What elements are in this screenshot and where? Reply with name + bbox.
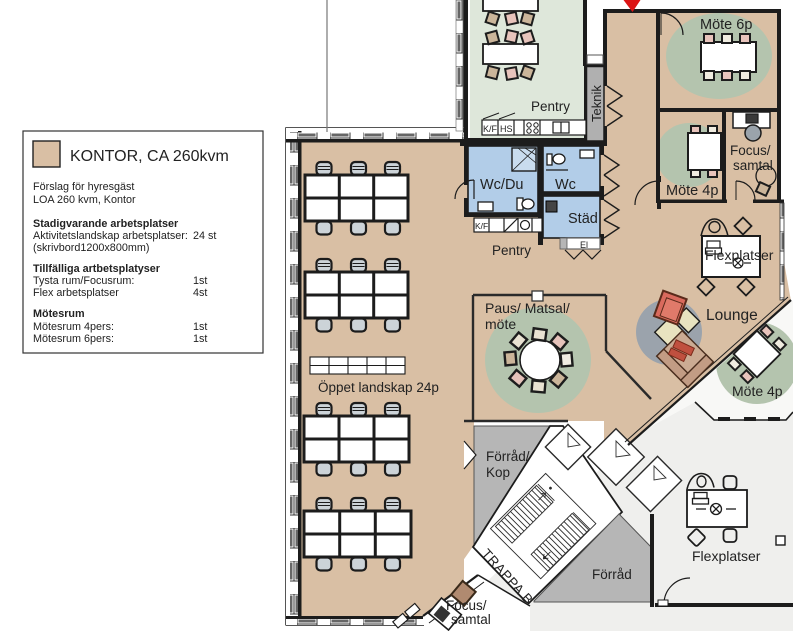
svg-text:möte: möte: [485, 316, 516, 332]
svg-text:El: El: [580, 240, 588, 250]
svg-text:Möte 6p: Möte 6p: [700, 17, 752, 33]
svg-text:Wc: Wc: [555, 177, 576, 193]
svg-text:24 st: 24 st: [193, 230, 216, 242]
svg-text:Mötesrum 6pers:: Mötesrum 6pers:: [33, 333, 114, 345]
svg-text:1st: 1st: [193, 321, 207, 333]
svg-text:(skrivbord1200x800mm): (skrivbord1200x800mm): [33, 242, 149, 254]
svg-text:Mötesrum: Mötesrum: [33, 308, 85, 320]
svg-text:Flex arbetsplatser: Flex arbetsplatser: [33, 287, 119, 299]
svg-text:Tysta rum/Focusrum:: Tysta rum/Focusrum:: [33, 275, 134, 287]
svg-text:Wc/Du: Wc/Du: [480, 177, 524, 193]
svg-text:Mötesrum 4pers:: Mötesrum 4pers:: [33, 321, 114, 333]
svg-text:Tillfälliga artbetsplatyser: Tillfälliga artbetsplatyser: [33, 263, 161, 275]
svg-text:HS: HS: [500, 124, 513, 134]
svg-text:Möte 4p: Möte 4p: [666, 183, 718, 199]
svg-text:1st: 1st: [193, 275, 207, 287]
svg-text:Stadigvarande arbetsplatser: Stadigvarande arbetsplatser: [33, 218, 179, 230]
svg-text:K/F: K/F: [475, 221, 488, 231]
svg-text:1st: 1st: [193, 333, 207, 345]
svg-text:Kop: Kop: [486, 465, 510, 480]
svg-text:K/F: K/F: [483, 124, 498, 134]
svg-text:Flexplatser: Flexplatser: [692, 548, 761, 564]
svg-text:Pentry: Pentry: [531, 99, 570, 114]
svg-text:Lounge: Lounge: [706, 307, 758, 324]
svg-text:Förslag för hyresgäst: Förslag för hyresgäst: [33, 181, 134, 193]
svg-text:Flexplatser: Flexplatser: [705, 247, 774, 263]
svg-text:samtal: samtal: [733, 158, 773, 173]
svg-text:LOA 260 kvm, Kontor: LOA 260 kvm, Kontor: [33, 194, 136, 206]
svg-text:Öppet landskap 24p: Öppet landskap 24p: [318, 380, 439, 395]
svg-text:Focus/: Focus/: [446, 598, 487, 613]
svg-text:Focus/: Focus/: [730, 143, 771, 158]
svg-text:Möte 4p: Möte 4p: [732, 383, 783, 399]
svg-text:Förråd/: Förråd/: [486, 449, 530, 464]
svg-text:4st: 4st: [193, 287, 207, 299]
svg-text:Aktivitetslandskap arbetsplats: Aktivitetslandskap arbetsplatser:: [33, 230, 188, 242]
svg-text:Pentry: Pentry: [492, 243, 531, 258]
svg-text:Paus/ Matsal/: Paus/ Matsal/: [485, 300, 570, 316]
svg-text:Teknik: Teknik: [589, 85, 604, 122]
svg-text:samtal: samtal: [451, 612, 491, 627]
svg-text:KONTOR, CA 260kvm: KONTOR, CA 260kvm: [70, 148, 229, 165]
svg-text:Förråd: Förråd: [592, 567, 632, 582]
svg-text:Städ: Städ: [568, 211, 598, 227]
